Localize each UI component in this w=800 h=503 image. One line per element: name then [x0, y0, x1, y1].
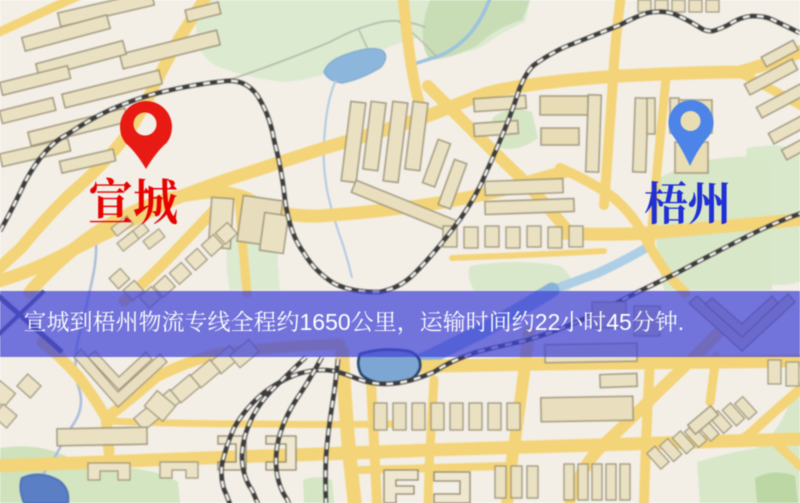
svg-text:.: . — [678, 309, 684, 335]
svg-text:22: 22 — [535, 309, 561, 335]
svg-text:45: 45 — [606, 309, 632, 335]
svg-text:1650: 1650 — [300, 309, 351, 335]
